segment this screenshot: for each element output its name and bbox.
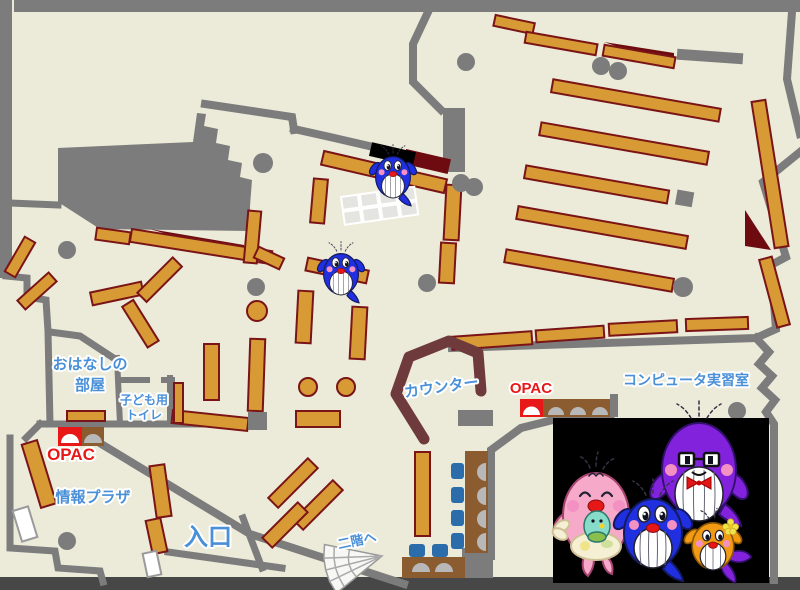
floor-map-canvas: おはなしの 部屋 子ども用 トイレ OPAC 情報プラザ 入口 カウンター OP… bbox=[0, 0, 800, 590]
wall-stub bbox=[610, 394, 618, 417]
bookshelf bbox=[174, 383, 183, 423]
label-story-room: おはなしの bbox=[52, 356, 127, 373]
pillar bbox=[253, 153, 273, 173]
pillar bbox=[592, 57, 610, 75]
pillar bbox=[465, 178, 483, 196]
pillar bbox=[247, 278, 265, 296]
bookshelf bbox=[686, 317, 748, 331]
counter-desk bbox=[458, 410, 493, 426]
bookshelf bbox=[248, 339, 266, 411]
label-story-room: 部屋 bbox=[75, 376, 105, 394]
library-floor-map: おはなしの 部屋 子ども用 トイレ OPAC 情報プラザ 入口 カウンター OP… bbox=[0, 0, 800, 590]
chair bbox=[451, 510, 464, 526]
mascot-teal-baby bbox=[584, 511, 610, 542]
chair bbox=[451, 463, 464, 479]
wall bbox=[0, 0, 12, 278]
bookshelf bbox=[67, 411, 105, 421]
wall bbox=[10, 203, 58, 205]
bookshelf bbox=[296, 291, 314, 344]
pillar bbox=[58, 241, 76, 259]
bookshelf bbox=[310, 178, 328, 223]
label-computer-room: コンピュータ実習室 bbox=[623, 372, 749, 388]
bookshelf bbox=[439, 243, 456, 284]
shelf-end-block bbox=[248, 412, 267, 430]
wall bbox=[14, 0, 800, 12]
pillar bbox=[58, 532, 76, 550]
label-info-plaza: 情報プラザ bbox=[55, 488, 130, 506]
chair bbox=[451, 487, 464, 503]
pillar bbox=[418, 274, 436, 292]
pillar bbox=[609, 62, 627, 80]
bookshelf bbox=[415, 452, 430, 536]
chair bbox=[451, 533, 464, 549]
label-kids-toilet: 子ども用 bbox=[120, 393, 168, 407]
round-table bbox=[247, 301, 267, 321]
chair bbox=[409, 544, 425, 557]
bookshelf bbox=[350, 307, 368, 360]
pillar bbox=[457, 53, 475, 71]
bookshelf bbox=[204, 344, 219, 400]
round-table bbox=[337, 378, 355, 396]
bookshelf bbox=[444, 185, 462, 241]
label-opac-left: OPAC bbox=[47, 445, 95, 464]
opac-station-left bbox=[58, 427, 104, 446]
bookshelf bbox=[609, 320, 678, 336]
bookshelf bbox=[296, 411, 340, 427]
label-entrance: 入口 bbox=[184, 524, 232, 551]
label-opac-right: OPAC bbox=[510, 380, 552, 397]
shelf-end-block bbox=[675, 190, 694, 208]
chair bbox=[432, 544, 448, 557]
pc-desk bbox=[402, 557, 465, 578]
label-kids-toilet: トイレ bbox=[126, 408, 162, 422]
pillar bbox=[673, 277, 693, 297]
pillar bbox=[728, 402, 746, 420]
round-table bbox=[299, 378, 317, 396]
